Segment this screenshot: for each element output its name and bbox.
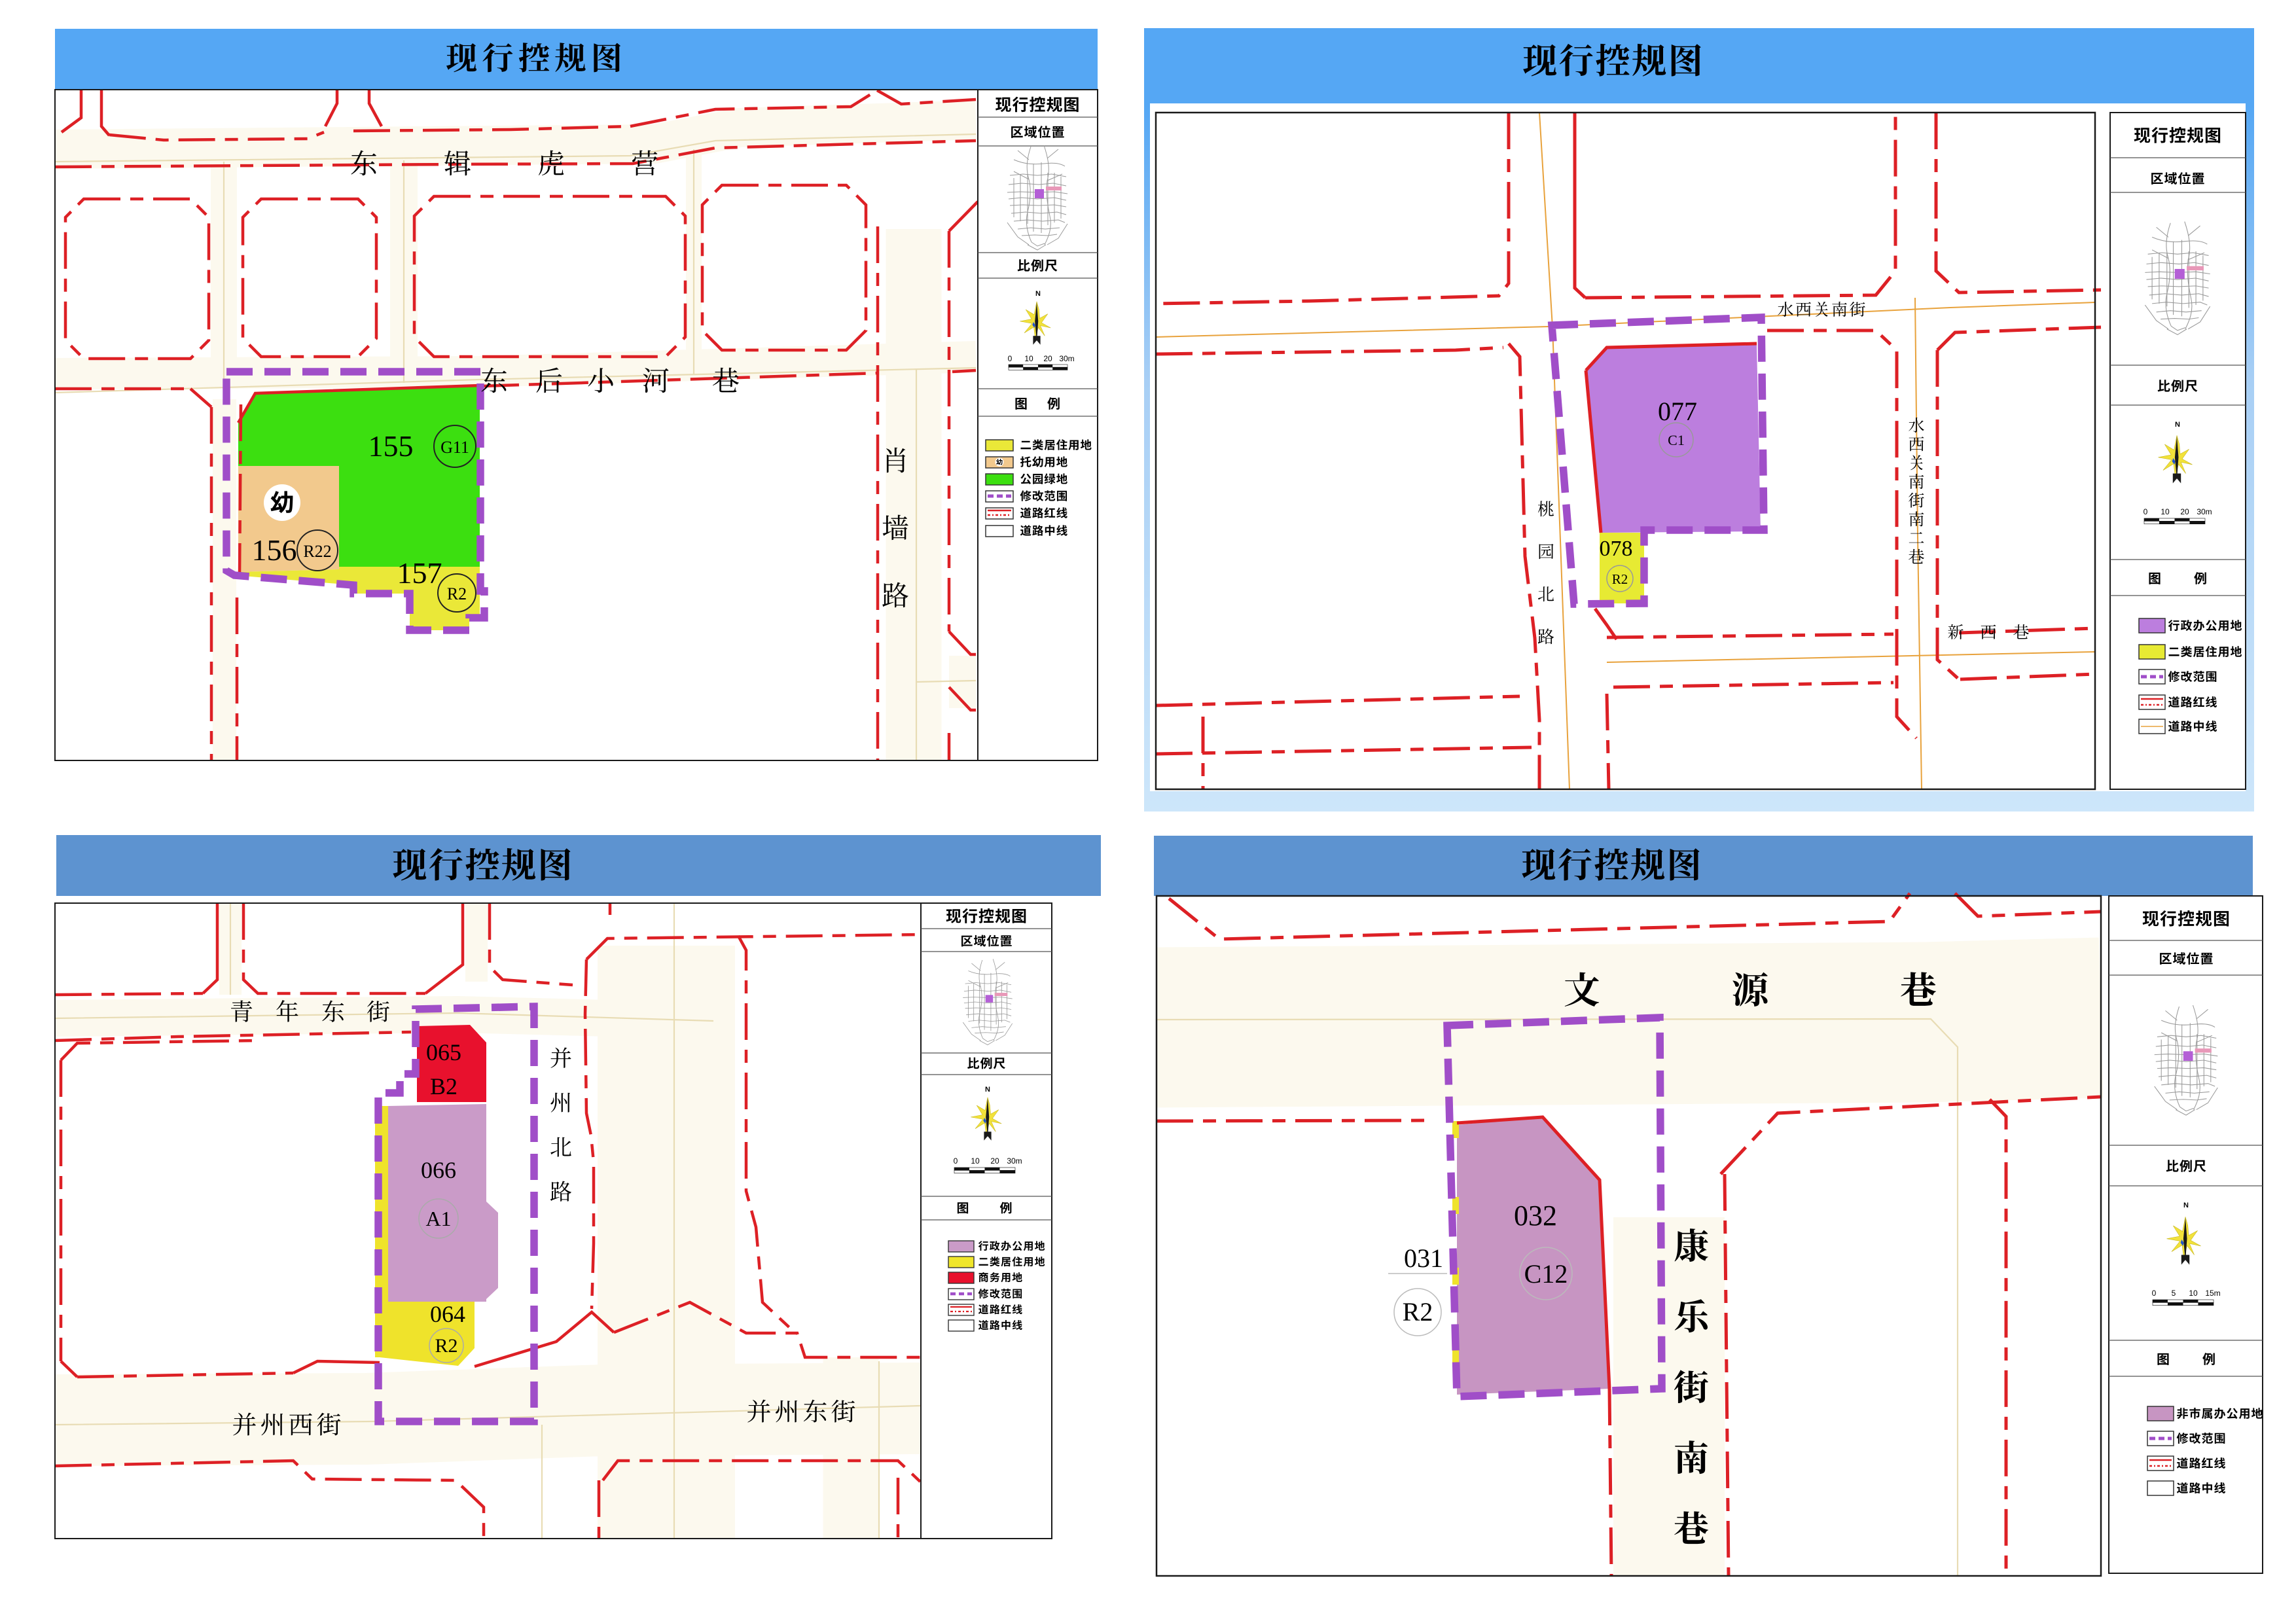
svg-text:15m: 15m: [2205, 1289, 2220, 1298]
svg-text:R22: R22: [303, 542, 331, 561]
svg-text:066: 066: [421, 1157, 456, 1183]
svg-text:10: 10: [2161, 507, 2170, 516]
svg-text:C12: C12: [1524, 1259, 1568, 1289]
svg-text:C1: C1: [1668, 432, 1685, 448]
svg-text:30m: 30m: [1059, 354, 1074, 363]
svg-text:N: N: [2183, 1202, 2189, 1209]
svg-text:R2: R2: [1403, 1297, 1433, 1327]
svg-text:078: 078: [1600, 537, 1633, 561]
svg-text:30m: 30m: [1007, 1156, 1022, 1166]
svg-text:R2: R2: [1612, 571, 1628, 587]
svg-text:R2: R2: [447, 584, 467, 603]
svg-text:032: 032: [1514, 1200, 1557, 1232]
svg-text:0: 0: [2144, 507, 2148, 516]
svg-text:155: 155: [368, 429, 414, 463]
svg-text:064: 064: [430, 1301, 465, 1327]
svg-text:031: 031: [1404, 1243, 1443, 1273]
svg-text:0: 0: [1008, 354, 1013, 363]
svg-text:A1: A1: [425, 1207, 451, 1230]
svg-text:10: 10: [2189, 1289, 2198, 1298]
svg-text:30m: 30m: [2197, 507, 2212, 516]
svg-text:065: 065: [426, 1039, 461, 1065]
svg-text:20: 20: [2180, 507, 2189, 516]
svg-text:157: 157: [397, 556, 442, 590]
svg-text:10: 10: [1024, 354, 1033, 363]
svg-text:N: N: [985, 1086, 990, 1094]
svg-text:20: 20: [1043, 354, 1052, 363]
svg-text:N: N: [2175, 421, 2180, 429]
svg-text:N: N: [1035, 290, 1041, 298]
svg-text:077: 077: [1658, 397, 1697, 426]
svg-text:0: 0: [954, 1156, 958, 1166]
svg-text:20: 20: [990, 1156, 999, 1166]
svg-text:G11: G11: [440, 438, 469, 457]
svg-text:R2: R2: [435, 1335, 457, 1357]
svg-text:0: 0: [2152, 1289, 2157, 1298]
svg-text:10: 10: [971, 1156, 980, 1166]
svg-text:B2: B2: [430, 1073, 457, 1099]
svg-text:5: 5: [2172, 1289, 2176, 1298]
svg-text:156: 156: [252, 533, 297, 567]
